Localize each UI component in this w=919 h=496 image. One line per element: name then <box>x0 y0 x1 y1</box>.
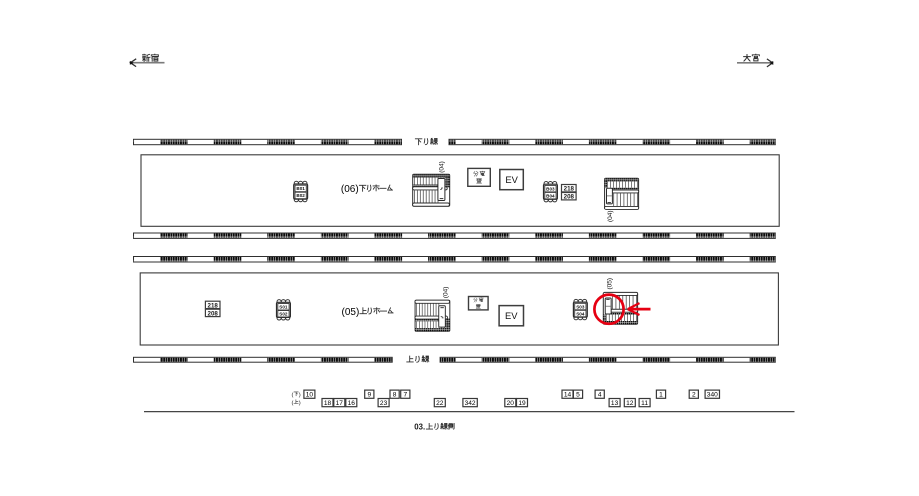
svg-text:218: 218 <box>208 302 219 309</box>
svg-text:12: 12 <box>626 400 634 407</box>
svg-text:B02: B02 <box>296 193 305 198</box>
svg-text:7: 7 <box>403 392 407 399</box>
svg-text:(05): (05) <box>607 278 614 290</box>
svg-text:11: 11 <box>641 400 648 407</box>
svg-text:14: 14 <box>564 392 572 399</box>
svg-text:16: 16 <box>348 400 356 407</box>
svg-text:(04): (04) <box>439 161 446 173</box>
svg-text:9: 9 <box>367 392 371 399</box>
svg-text:S02: S02 <box>279 312 288 317</box>
svg-text:(: ( <box>292 400 294 406</box>
svg-text:5: 5 <box>576 392 580 399</box>
svg-text:13: 13 <box>611 400 619 407</box>
svg-text:4: 4 <box>598 392 602 399</box>
svg-text:03.: 03. <box>414 423 425 432</box>
svg-text:23: 23 <box>380 400 388 407</box>
svg-text:): ) <box>299 400 301 406</box>
svg-text:S04: S04 <box>576 311 585 316</box>
svg-text:EV: EV <box>505 174 518 185</box>
svg-text:S01: S01 <box>279 305 288 310</box>
svg-text:22: 22 <box>436 400 444 407</box>
svg-text:2: 2 <box>692 392 696 399</box>
svg-text:EV: EV <box>505 310 518 321</box>
svg-text:B01: B01 <box>296 186 305 191</box>
svg-text:B04: B04 <box>546 193 555 198</box>
svg-text:218: 218 <box>564 186 575 193</box>
svg-text:8: 8 <box>393 392 397 399</box>
svg-text:(: ( <box>292 392 294 398</box>
svg-text:(06): (06) <box>341 184 359 195</box>
svg-text:18: 18 <box>324 400 332 407</box>
svg-text:340: 340 <box>707 392 718 399</box>
svg-text:S03: S03 <box>576 304 585 309</box>
svg-text:1: 1 <box>659 392 663 399</box>
svg-text:B03: B03 <box>546 186 555 191</box>
svg-text:208: 208 <box>208 310 219 317</box>
svg-text:10: 10 <box>306 392 314 399</box>
svg-text:): ) <box>299 392 301 398</box>
svg-text:208: 208 <box>564 194 575 201</box>
svg-text:20: 20 <box>507 400 515 407</box>
svg-text:17: 17 <box>336 400 344 407</box>
svg-text:(04): (04) <box>607 210 614 222</box>
svg-text:342: 342 <box>465 400 476 407</box>
svg-text:(04): (04) <box>442 287 449 299</box>
svg-text:(05): (05) <box>342 307 360 318</box>
svg-text:19: 19 <box>518 400 526 407</box>
